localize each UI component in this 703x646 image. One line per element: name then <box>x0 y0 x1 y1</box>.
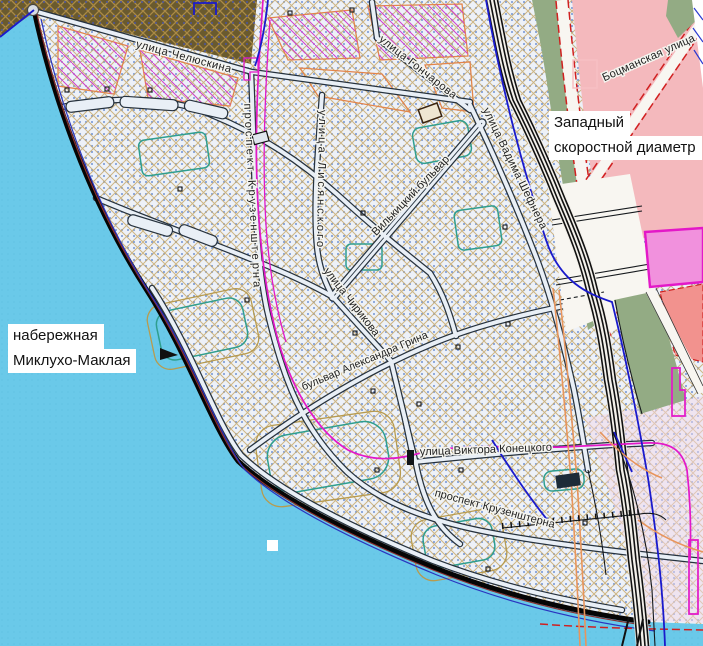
callout-naberezhnaya-line1: набережная <box>8 324 104 349</box>
map-svg[interactable]: улица Челюскина улица Гончарова Боцманск… <box>0 0 703 646</box>
callout-zsd-line1: Западный <box>549 111 630 136</box>
callout-naberezhnaya-line2: Миклухо-Маклая <box>8 349 136 374</box>
white-water-marker <box>267 540 278 551</box>
callout-zsd: Западный скоростной диаметр <box>549 111 702 160</box>
callout-naberezhnaya: набережная Миклухо-Маклая <box>8 324 136 373</box>
callout-zsd-line2: скоростной диаметр <box>549 136 702 161</box>
map-canvas[interactable]: улица Челюскина улица Гончарова Боцманск… <box>0 0 703 646</box>
bright-pink-block <box>645 228 703 287</box>
street-label-lisyanskogo: улица Лисянского <box>314 110 328 250</box>
